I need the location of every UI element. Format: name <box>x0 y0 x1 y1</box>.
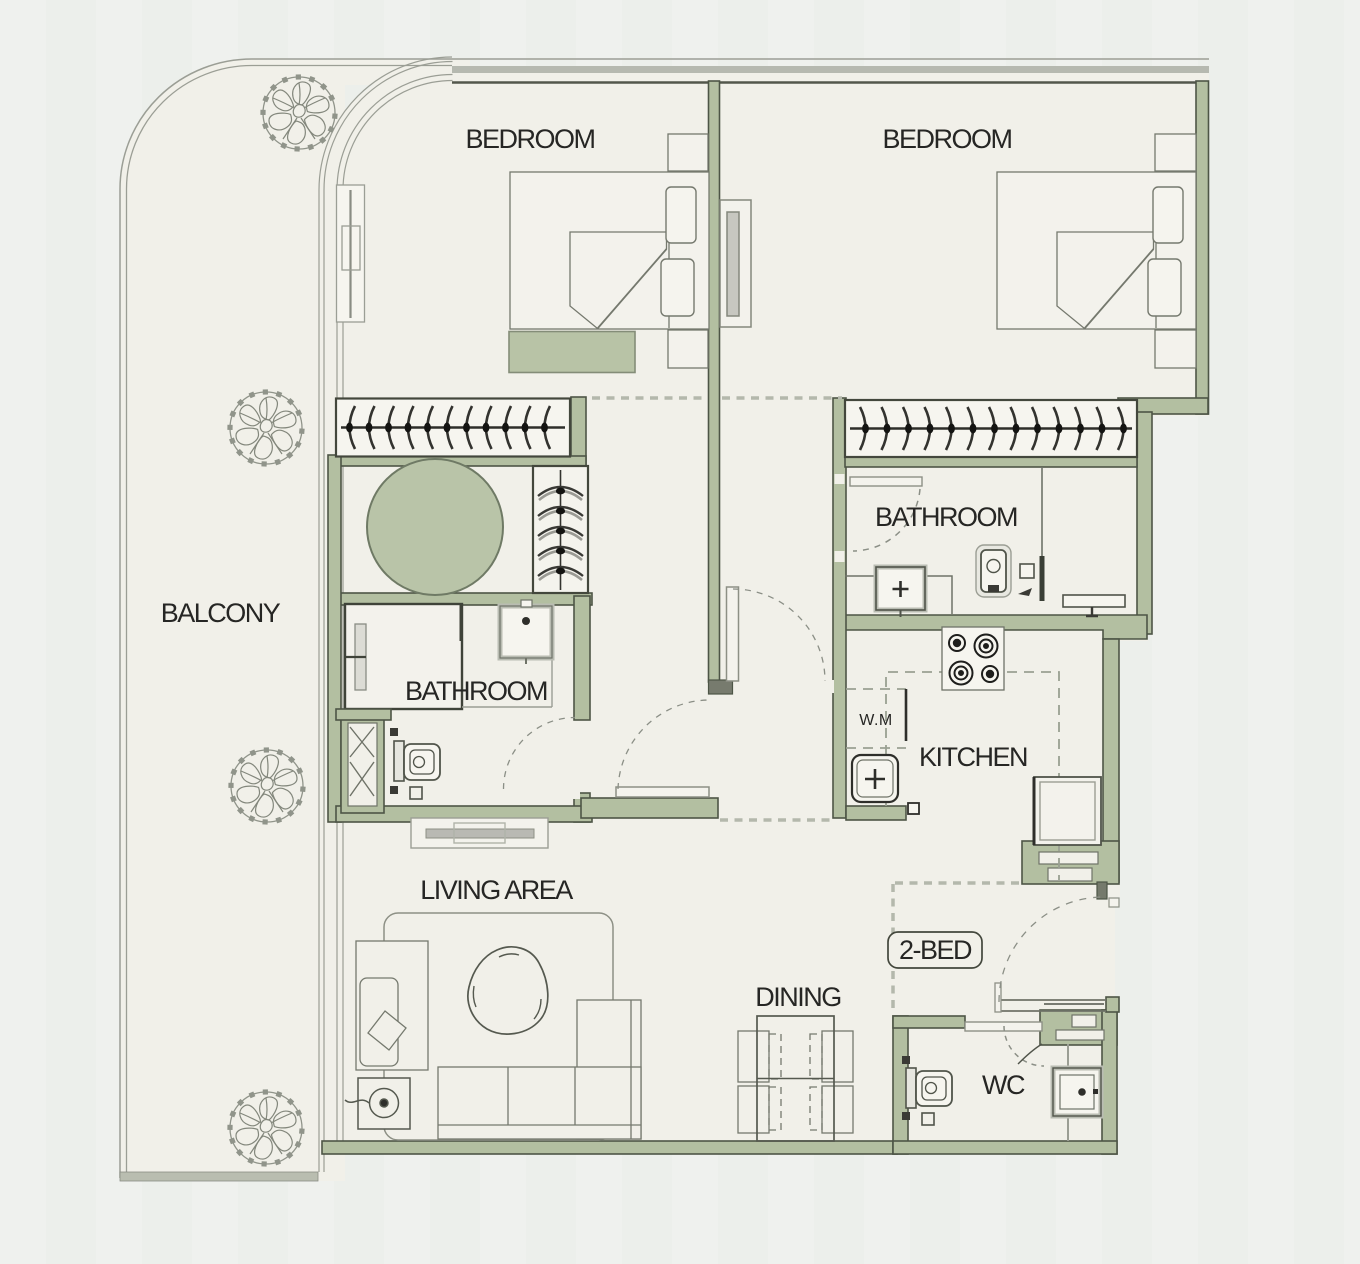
svg-text:2-BED: 2-BED <box>899 935 972 965</box>
svg-text:KITCHEN: KITCHEN <box>919 742 1027 772</box>
svg-text:BATHROOM: BATHROOM <box>875 502 1017 532</box>
svg-text:DINING: DINING <box>755 982 841 1012</box>
svg-text:BEDROOM: BEDROOM <box>882 124 1011 154</box>
svg-text:WC: WC <box>982 1070 1025 1100</box>
svg-text:BEDROOM: BEDROOM <box>465 124 594 154</box>
svg-text:BATHROOM: BATHROOM <box>405 676 547 706</box>
svg-text:LIVING AREA: LIVING AREA <box>420 875 573 905</box>
svg-text:BALCONY: BALCONY <box>161 598 281 628</box>
svg-text:W.M: W.M <box>859 712 893 729</box>
